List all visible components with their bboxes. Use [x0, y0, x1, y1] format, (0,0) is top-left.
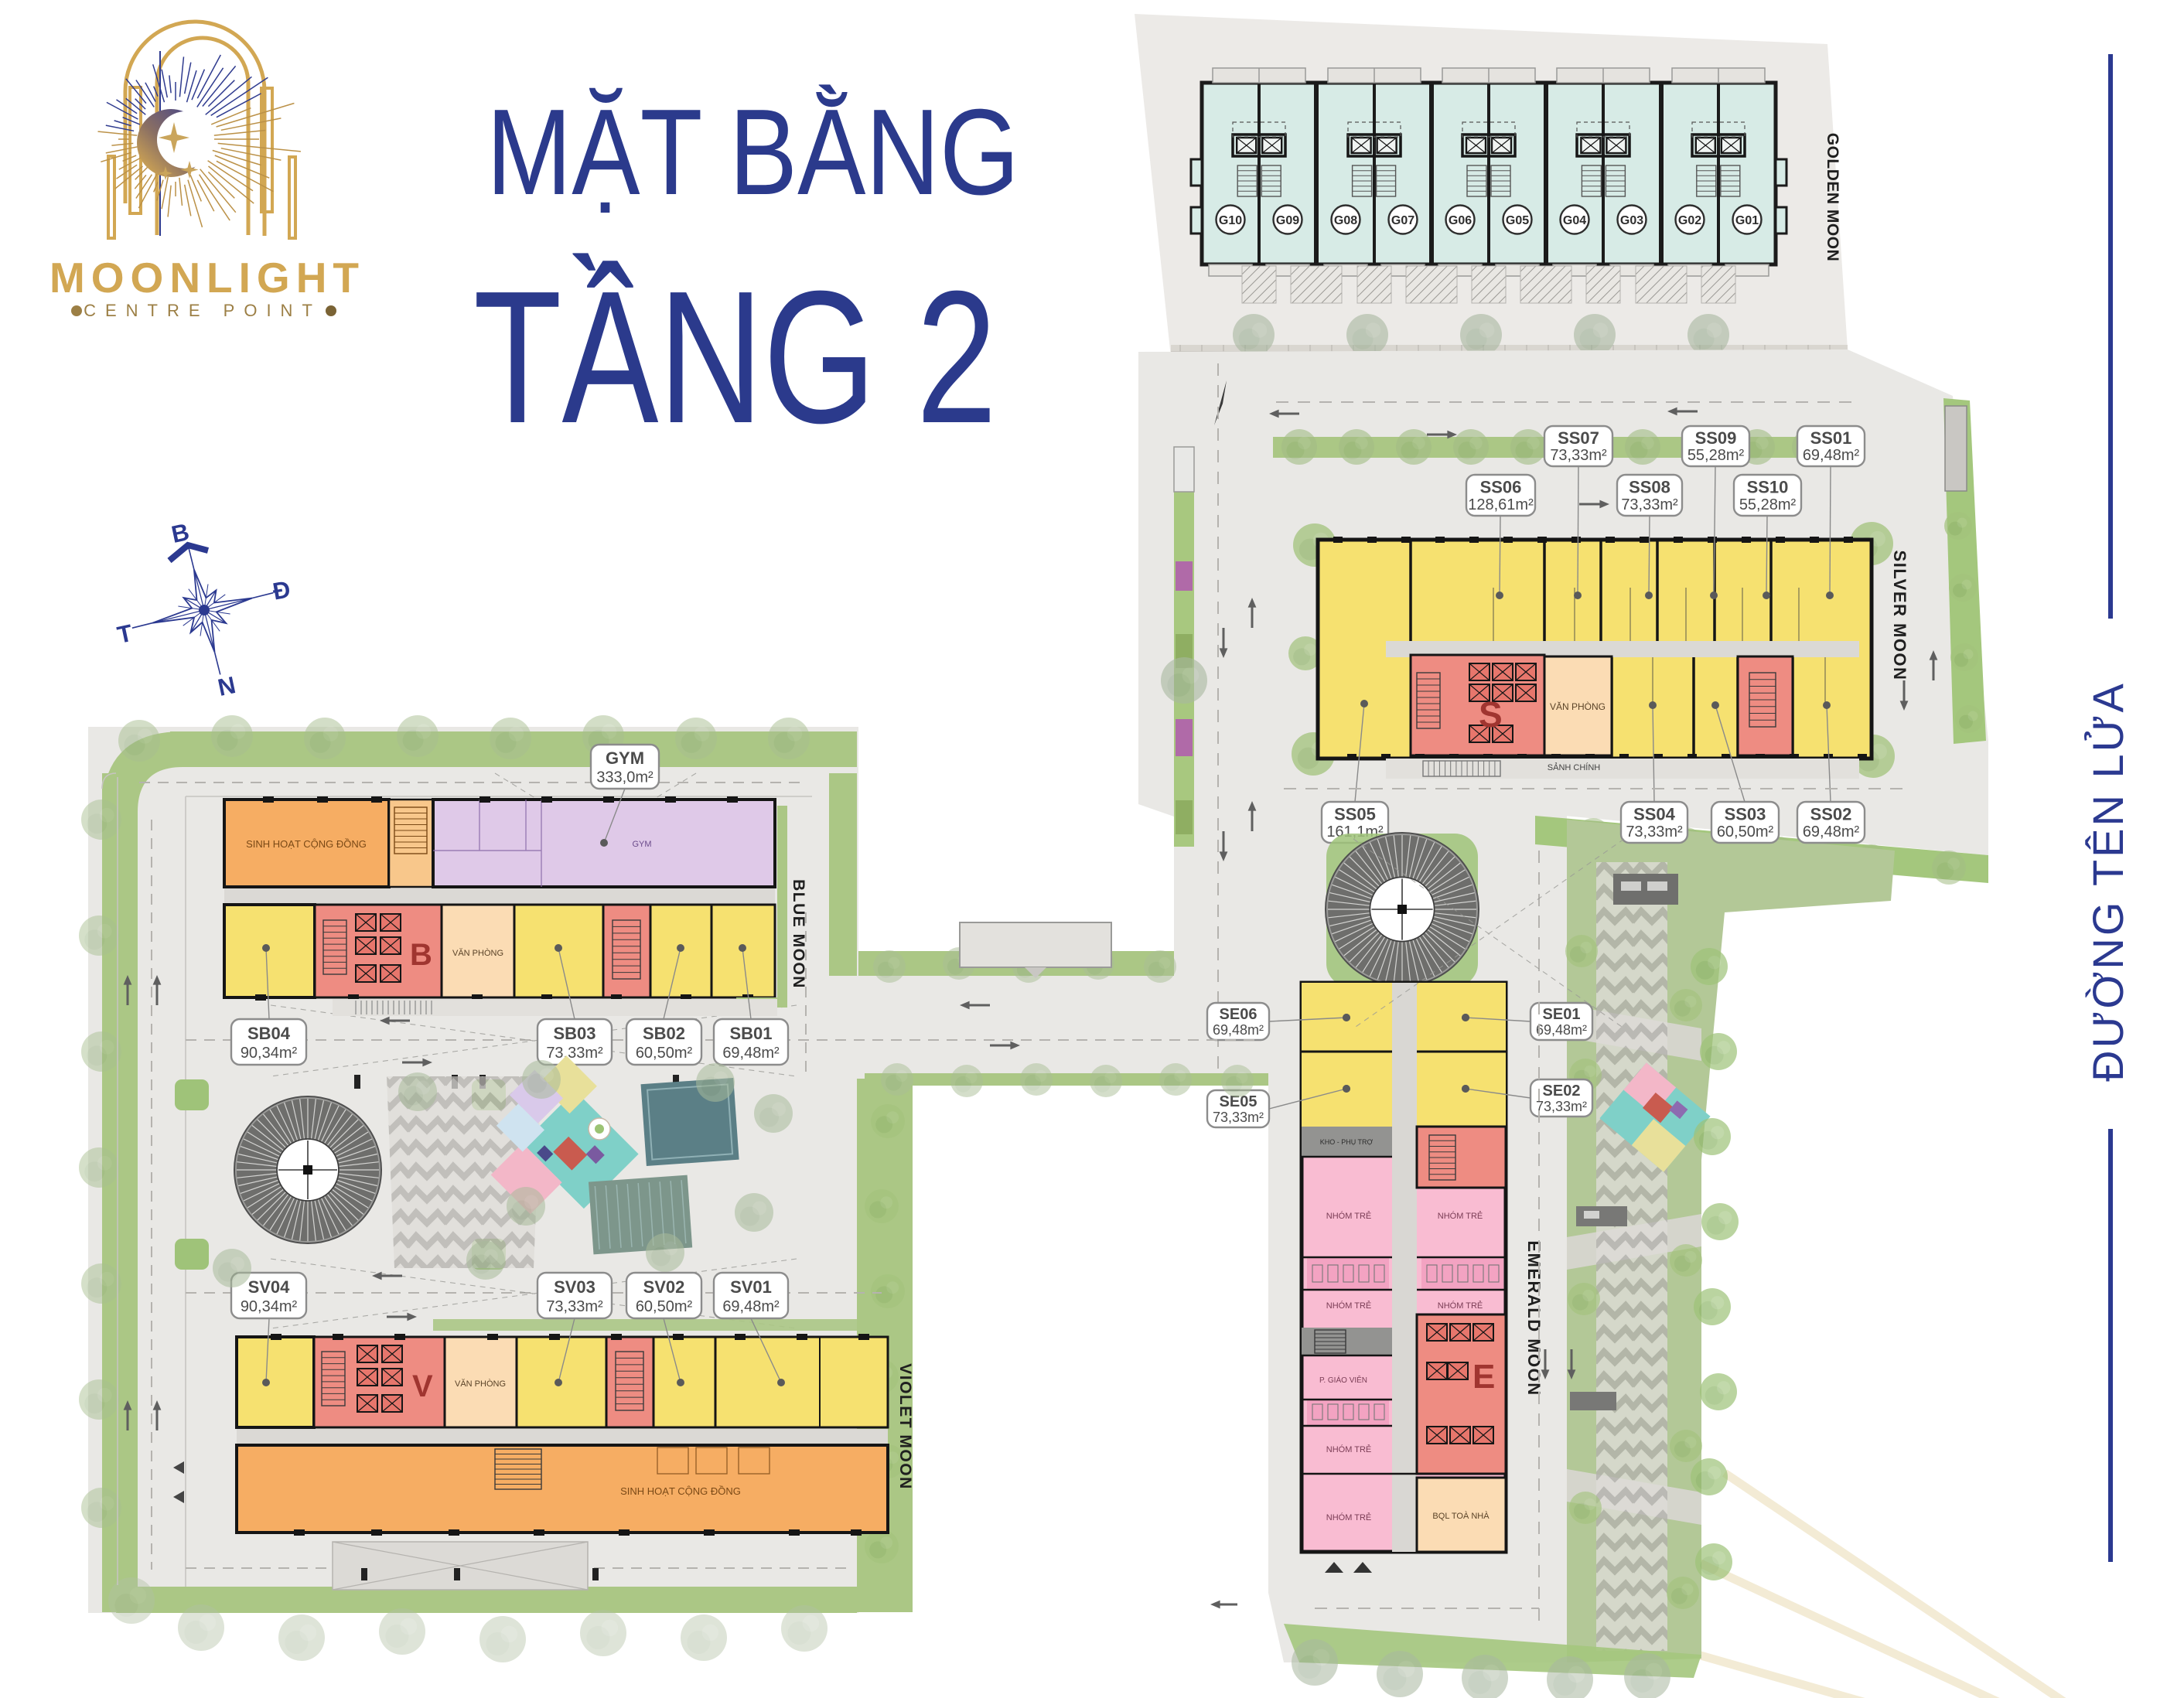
svg-text:G07: G07 — [1391, 214, 1414, 227]
svg-text:90,34m²: 90,34m² — [241, 1045, 298, 1062]
svg-text:69,48m²: 69,48m² — [1803, 823, 1860, 840]
svg-text:60,50m²: 60,50m² — [1717, 823, 1774, 840]
svg-text:SS01: SS01 — [1810, 428, 1852, 448]
svg-text:NHÓM TRẺ: NHÓM TRẺ — [1326, 1444, 1371, 1454]
svg-text:73,33m²: 73,33m² — [1626, 823, 1683, 840]
svg-text:69,48m²: 69,48m² — [722, 1045, 780, 1062]
svg-text:SS10: SS10 — [1747, 477, 1789, 496]
svg-text:MOONLIGHT: MOONLIGHT — [49, 254, 365, 302]
svg-text:E: E — [1472, 1358, 1495, 1396]
svg-text:G10: G10 — [1219, 214, 1242, 227]
svg-text:ĐƯỜNG TÊN LỬA: ĐƯỜNG TÊN LỬA — [2083, 681, 2132, 1082]
svg-text:73,33m²: 73,33m² — [1621, 496, 1678, 513]
svg-text:G08: G08 — [1334, 214, 1357, 227]
svg-text:128,61m²: 128,61m² — [1468, 496, 1534, 513]
svg-text:G09: G09 — [1276, 214, 1299, 227]
svg-text:EMERALD MOON: EMERALD MOON — [1524, 1240, 1544, 1396]
svg-text:VĂN PHÒNG: VĂN PHÒNG — [455, 1379, 506, 1389]
svg-text:S: S — [1479, 694, 1503, 735]
svg-text:G03: G03 — [1620, 214, 1643, 227]
svg-text:SV02: SV02 — [643, 1277, 685, 1297]
svg-text:GYM: GYM — [632, 840, 651, 849]
svg-text:SV03: SV03 — [554, 1277, 595, 1297]
svg-text:KHO - PHỤ TRỢ: KHO - PHỤ TRỢ — [1320, 1138, 1374, 1146]
svg-text:SS07: SS07 — [1558, 428, 1599, 448]
svg-text:CENTRE POINT: CENTRE POINT — [84, 301, 322, 320]
svg-text:55,28m²: 55,28m² — [1739, 496, 1797, 513]
svg-text:V: V — [412, 1369, 433, 1403]
svg-text:MẶT BẰNG: MẶT BẰNG — [486, 84, 1019, 220]
svg-text:G02: G02 — [1678, 214, 1701, 227]
svg-text:SB04: SB04 — [247, 1024, 291, 1043]
svg-text:69,48m²: 69,48m² — [1536, 1022, 1587, 1038]
svg-text:333,0m²: 333,0m² — [596, 769, 653, 786]
svg-text:69,48m²: 69,48m² — [722, 1298, 780, 1315]
svg-text:69,48m²: 69,48m² — [1213, 1022, 1264, 1038]
svg-text:73,33m²: 73,33m² — [1536, 1099, 1587, 1114]
svg-text:NHÓM TRẺ: NHÓM TRẺ — [1326, 1301, 1371, 1311]
svg-text:NHÓM TRẺ: NHÓM TRẺ — [1438, 1211, 1483, 1221]
svg-text:73,33m²: 73,33m² — [546, 1298, 603, 1315]
svg-text:BLUE MOON: BLUE MOON — [790, 879, 807, 989]
svg-text:VĂN PHÒNG: VĂN PHÒNG — [1550, 701, 1606, 712]
svg-text:55,28m²: 55,28m² — [1687, 447, 1745, 464]
svg-text:SE06: SE06 — [1220, 1006, 1258, 1023]
svg-text:NHÓM TRẺ: NHÓM TRẺ — [1326, 1512, 1371, 1522]
svg-text:SS09: SS09 — [1695, 428, 1737, 448]
svg-text:90,34m²: 90,34m² — [241, 1298, 298, 1315]
svg-text:G01: G01 — [1735, 214, 1759, 227]
svg-text:GOLDEN MOON: GOLDEN MOON — [1824, 133, 1841, 262]
svg-text:SV04: SV04 — [248, 1277, 291, 1297]
svg-text:SINH HOẠT CỘNG ĐỒNG: SINH HOẠT CỘNG ĐỒNG — [620, 1485, 741, 1497]
svg-text:SE01: SE01 — [1543, 1006, 1581, 1023]
svg-text:SS02: SS02 — [1810, 804, 1852, 823]
svg-text:SẢNH CHÍNH: SẢNH CHÍNH — [1548, 762, 1601, 772]
svg-text:SS06: SS06 — [1480, 477, 1522, 496]
svg-text:BQL TOÀ NHÀ: BQL TOÀ NHÀ — [1432, 1511, 1490, 1521]
svg-text:G05: G05 — [1506, 214, 1529, 227]
svg-text:SE02: SE02 — [1543, 1083, 1581, 1100]
svg-text:NHÓM TRẺ: NHÓM TRẺ — [1326, 1211, 1371, 1221]
svg-text:69,48m²: 69,48m² — [1803, 447, 1860, 464]
svg-text:73,33m²: 73,33m² — [1550, 447, 1607, 464]
svg-text:SS04: SS04 — [1633, 804, 1676, 823]
svg-text:NHÓM TRẺ: NHÓM TRẺ — [1438, 1301, 1483, 1311]
svg-text:SV01: SV01 — [730, 1277, 772, 1297]
svg-text:GYM: GYM — [606, 748, 644, 768]
svg-text:SILVER MOON: SILVER MOON — [1890, 551, 1909, 681]
svg-text:SINH HOẠT CỘNG ĐỒNG: SINH HOẠT CỘNG ĐỒNG — [246, 838, 367, 850]
svg-text:SS03: SS03 — [1725, 804, 1766, 823]
svg-text:60,50m²: 60,50m² — [636, 1045, 693, 1062]
svg-text:VIOLET MOON: VIOLET MOON — [896, 1363, 914, 1490]
svg-text:73,33m²: 73,33m² — [1213, 1110, 1264, 1125]
svg-text:60,50m²: 60,50m² — [636, 1298, 693, 1315]
svg-text:SB03: SB03 — [553, 1024, 595, 1043]
svg-text:SS08: SS08 — [1629, 477, 1670, 496]
svg-text:P. GIÁO VIÊN: P. GIÁO VIÊN — [1319, 1375, 1367, 1385]
svg-text:73,33m²: 73,33m² — [546, 1045, 603, 1062]
svg-text:TẦNG 2: TẦNG 2 — [473, 251, 997, 462]
svg-text:SB01: SB01 — [729, 1024, 772, 1043]
svg-text:G04: G04 — [1563, 214, 1586, 227]
svg-text:SS05: SS05 — [1334, 804, 1376, 823]
svg-text:B: B — [410, 938, 432, 972]
svg-text:SB02: SB02 — [643, 1024, 685, 1043]
svg-text:G06: G06 — [1449, 214, 1472, 227]
svg-text:VĂN PHÒNG: VĂN PHÒNG — [452, 948, 503, 958]
